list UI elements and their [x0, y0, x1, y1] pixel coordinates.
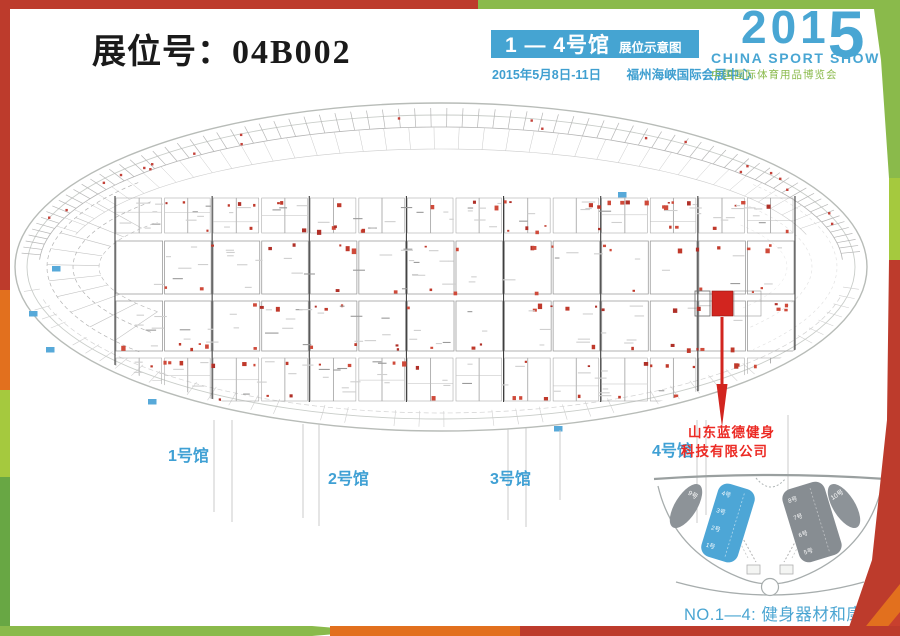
company-name-line2: 科技有限公司 — [681, 440, 768, 460]
minimap-entrance-circle — [762, 579, 779, 596]
hall-label-2: 2号馆 — [328, 465, 369, 489]
hall-range-subtitle: 展位示意图 — [619, 37, 682, 56]
show-logo-title: CHINA SPORT SHOW — [711, 50, 880, 66]
hall-range-text: 1 — 4号馆 — [491, 29, 610, 59]
hall-category-caption: NO.1—4: 健身器材和康复设备 — [684, 601, 900, 636]
minimap-halls-1-4: 4号 3号 2号 1号 — [699, 481, 758, 565]
booth-pointer-arrow — [717, 317, 728, 427]
minimap-hall-9: 9号 — [663, 479, 708, 533]
booth-number-value: 04B002 — [232, 34, 352, 71]
venue-overview-minimap: 9号 10号 4号 3号 2号 1号 8号 7号 6号 5号 — [650, 466, 890, 606]
booth-number-heading: 展位号：04B002 — [92, 24, 352, 73]
hall-label-1: 1号馆 — [168, 442, 209, 466]
hall-label-3: 3号馆 — [490, 465, 531, 489]
show-logo-subtitle: 中国国际体育用品博览会 — [711, 67, 838, 82]
venue-outer-ring — [15, 103, 867, 431]
exhibition-floorplan-poster: 9号 10号 4号 3号 2号 1号 8号 7号 6号 5号 — [0, 0, 900, 636]
floorplan-decoration — [22, 108, 860, 527]
booth-number-label: 展位号： — [92, 34, 232, 71]
highlighted-booth — [712, 291, 733, 316]
event-date: 2015年5月8日-11日 — [492, 68, 601, 82]
hall-range-banner: 1 — 4号馆 展位示意图 — [491, 30, 699, 58]
company-name-line1: 山东蓝德健身 — [688, 421, 775, 441]
